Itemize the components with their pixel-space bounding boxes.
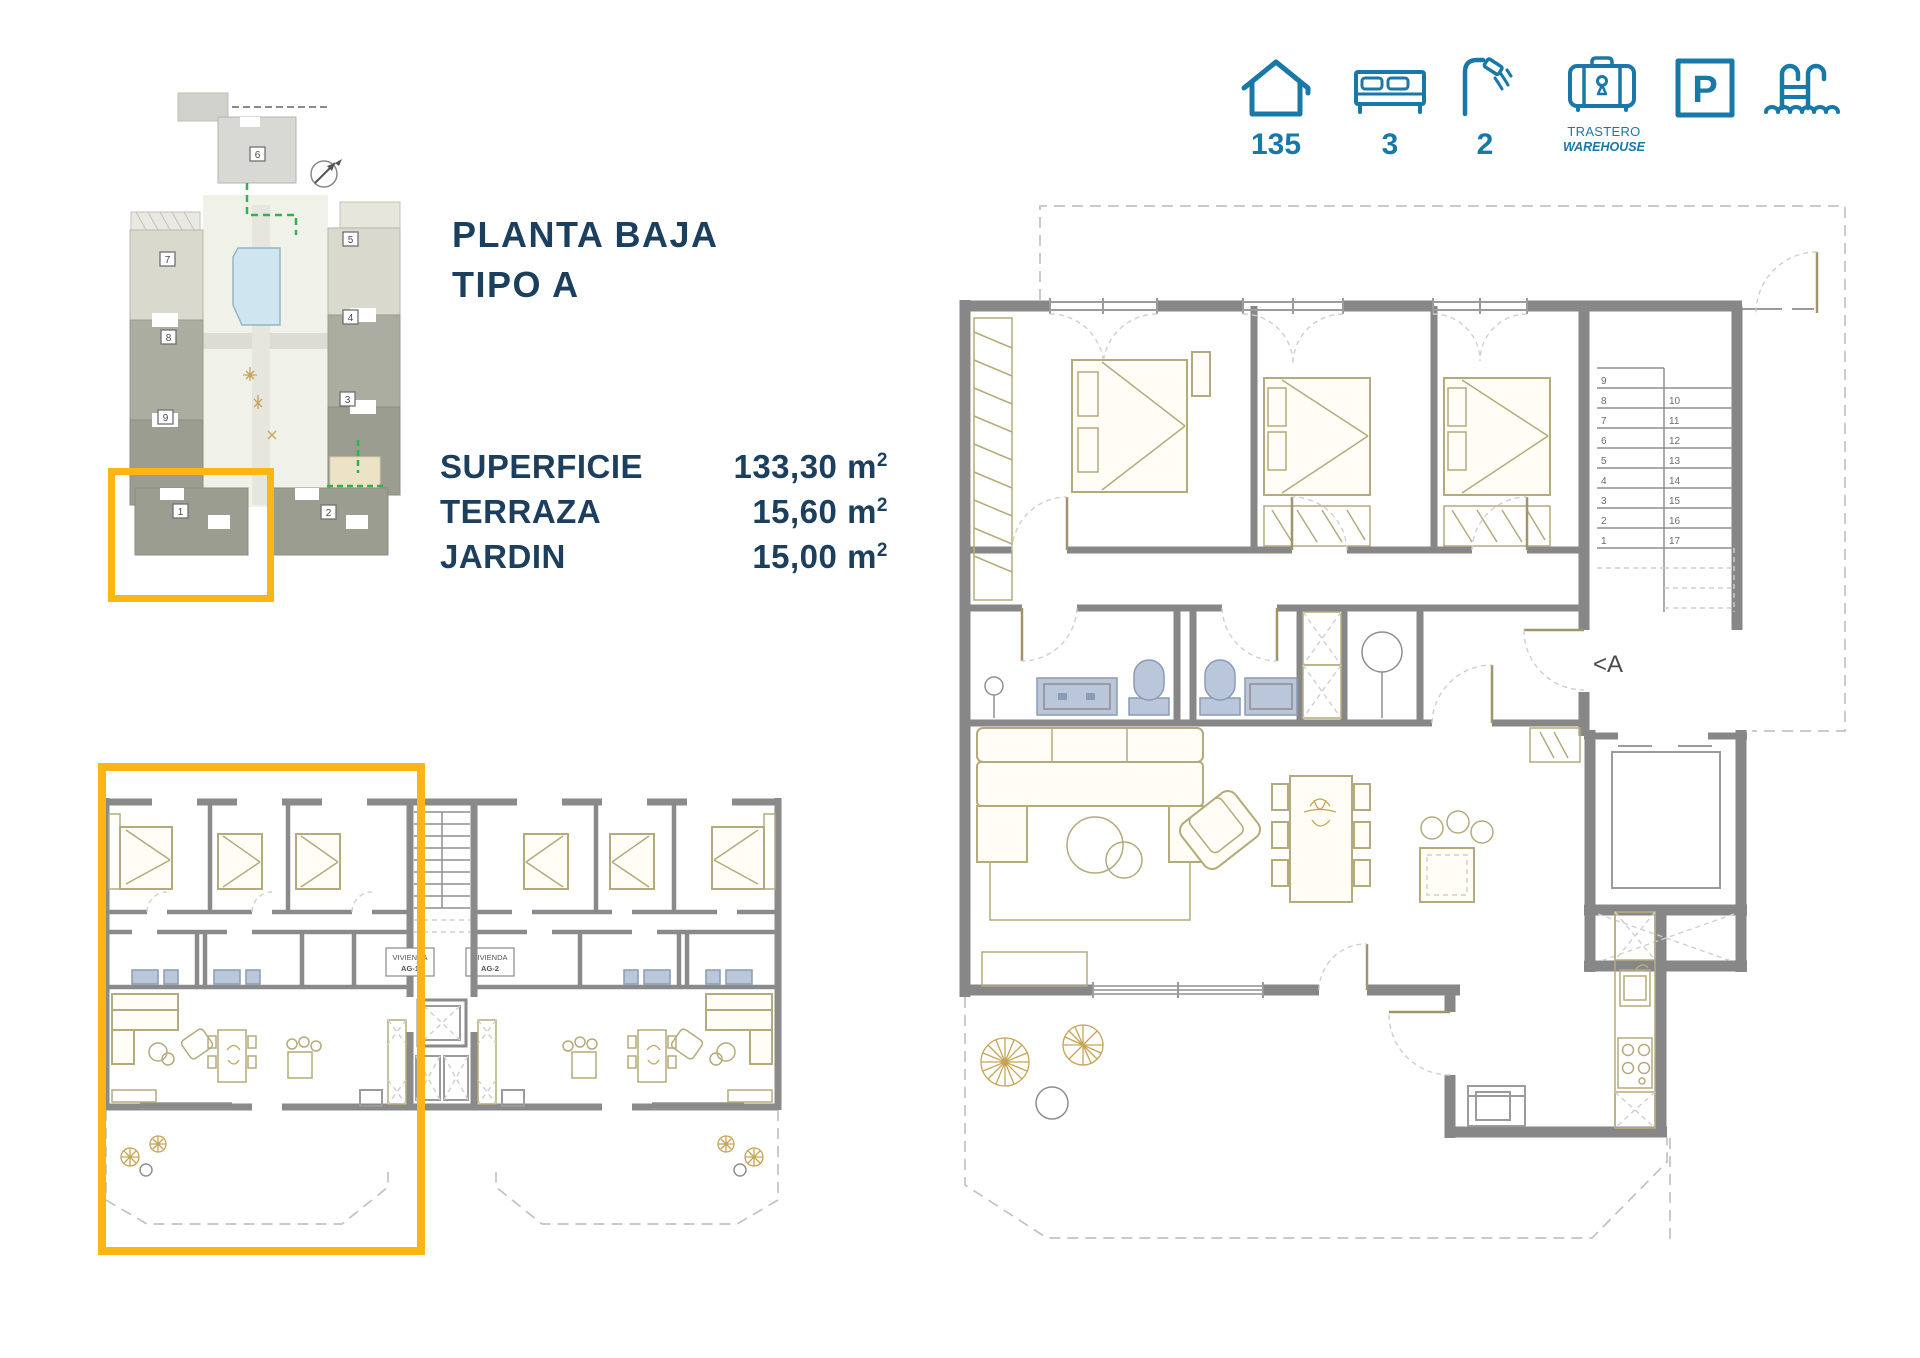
svg-text:14: 14: [1669, 476, 1681, 487]
svg-text:10: 10: [1669, 396, 1681, 407]
kitchen: [1468, 912, 1655, 1128]
building-label-4: 4: [348, 313, 354, 324]
site-building-4: [328, 315, 400, 407]
warehouse-icon: [1562, 52, 1646, 114]
spec-label: JARDIN: [440, 538, 566, 576]
svg-text:3: 3: [1601, 496, 1607, 507]
svg-text:12: 12: [1669, 436, 1681, 447]
site-pool: [233, 248, 280, 325]
spec-label: TERRAZA: [440, 493, 601, 531]
kitchen-island: [1420, 811, 1493, 902]
living-room: [977, 728, 1264, 986]
stairwell-entry-door: [1742, 252, 1817, 313]
bathroom-1: [985, 660, 1169, 718]
svg-text:13: 13: [1669, 456, 1681, 467]
pool-icon: [1762, 56, 1842, 120]
building-label-8: 8: [166, 333, 172, 344]
bedroom-2: [1264, 378, 1370, 546]
large-floor-plan: 9 8 7 6 5 4 3 2 1 10 11 12 13 14 15 16 1…: [952, 200, 1862, 1245]
spec-value: 133,30 m2: [733, 448, 888, 486]
spec-value: 15,60 m2: [752, 493, 888, 531]
svg-text:2: 2: [1601, 516, 1607, 527]
site-building-7: [130, 230, 203, 320]
bedroom-3: [1444, 378, 1550, 546]
building-label-3: 3: [345, 395, 351, 406]
svg-text:16: 16: [1669, 516, 1681, 527]
dining-area: [1272, 776, 1370, 902]
terrace-pot: [1036, 1087, 1068, 1119]
storage-label-en: WAREHOUSE: [1563, 140, 1645, 154]
parking-icon: P: [1673, 56, 1737, 120]
bed-icon: [1352, 62, 1428, 120]
building-label-7: 7: [165, 255, 171, 266]
spec-value: 15,00 m2: [752, 538, 888, 576]
svg-text:15: 15: [1669, 496, 1681, 507]
stairs: 9 8 7 6 5 4 3 2 1 10 11 12 13 14 15 16 1…: [1597, 368, 1734, 612]
shower-room: [1362, 632, 1402, 718]
svg-text:8: 8: [1601, 396, 1607, 407]
amenity-storage: TRASTERO WAREHOUSE: [1556, 52, 1652, 154]
bedroom-count: 3: [1382, 128, 1399, 162]
unit2-label-line2: AG-2: [481, 964, 499, 973]
spec-row-terraza: TERRAZA 15,60 m2: [440, 493, 888, 531]
amenity-pool: [1760, 56, 1844, 120]
house-icon: [1238, 56, 1314, 120]
svg-text:17: 17: [1669, 536, 1681, 547]
amenity-bathrooms: 2: [1452, 52, 1518, 162]
site-deck-right: [340, 202, 400, 228]
entry-hall-cabinet: [1530, 728, 1580, 762]
building-label-9: 9: [163, 413, 169, 424]
svg-text:4: 4: [1601, 476, 1607, 487]
bathroom-count: 2: [1477, 128, 1494, 162]
shower-icon: [1453, 52, 1517, 120]
building-label-2: 2: [326, 508, 332, 519]
plant-2: [1063, 1025, 1103, 1065]
parking-letter: P: [1692, 69, 1717, 111]
site-building-5: [328, 228, 400, 315]
compass-icon: [311, 159, 342, 187]
svg-text:9: 9: [1601, 376, 1607, 387]
unit-ag2: [474, 798, 778, 1224]
spec-row-superficie: SUPERFICIE 133,30 m2: [440, 448, 888, 486]
svg-text:5: 5: [1601, 456, 1607, 467]
svg-text:6: 6: [1601, 436, 1607, 447]
site-building-2: [268, 488, 388, 555]
building-label-5: 5: [348, 235, 354, 246]
svg-text:7: 7: [1601, 416, 1607, 427]
bedroom-1: [974, 318, 1210, 600]
svg-text:1: 1: [1601, 536, 1607, 547]
site-plan-highlight-box: [108, 468, 274, 602]
spec-row-jardin: JARDIN 15,00 m2: [440, 538, 888, 576]
terrace: [981, 1025, 1103, 1119]
page-title-line1: PLANTA BAJA: [452, 214, 719, 256]
storage-label-es: TRASTERO: [1567, 124, 1640, 139]
glass-doors: [1093, 982, 1263, 998]
amenity-bedrooms: 3: [1350, 62, 1430, 162]
brochure-page: 6 7 8 9 5 4 3 1 2 PLANTA BAJA TIPO A SUP…: [0, 0, 1920, 1358]
windows: [1050, 298, 1527, 368]
amenity-house: 135: [1236, 56, 1316, 162]
spec-label: SUPERFICIE: [440, 448, 643, 486]
plant-1: [981, 1038, 1029, 1086]
bathroom-2: [1200, 660, 1297, 715]
house-count: 135: [1251, 128, 1301, 162]
building-label-6: 6: [255, 150, 261, 161]
page-title-line2: TIPO A: [452, 264, 580, 306]
svg-text:11: 11: [1669, 416, 1680, 427]
laundry-closet: [1303, 612, 1341, 718]
section-label: <A: [1593, 651, 1623, 678]
amenity-parking: P: [1672, 56, 1738, 120]
unit2-label-line1: VIVIENDA: [472, 953, 507, 962]
small-plan-highlight-box: [98, 763, 425, 1255]
